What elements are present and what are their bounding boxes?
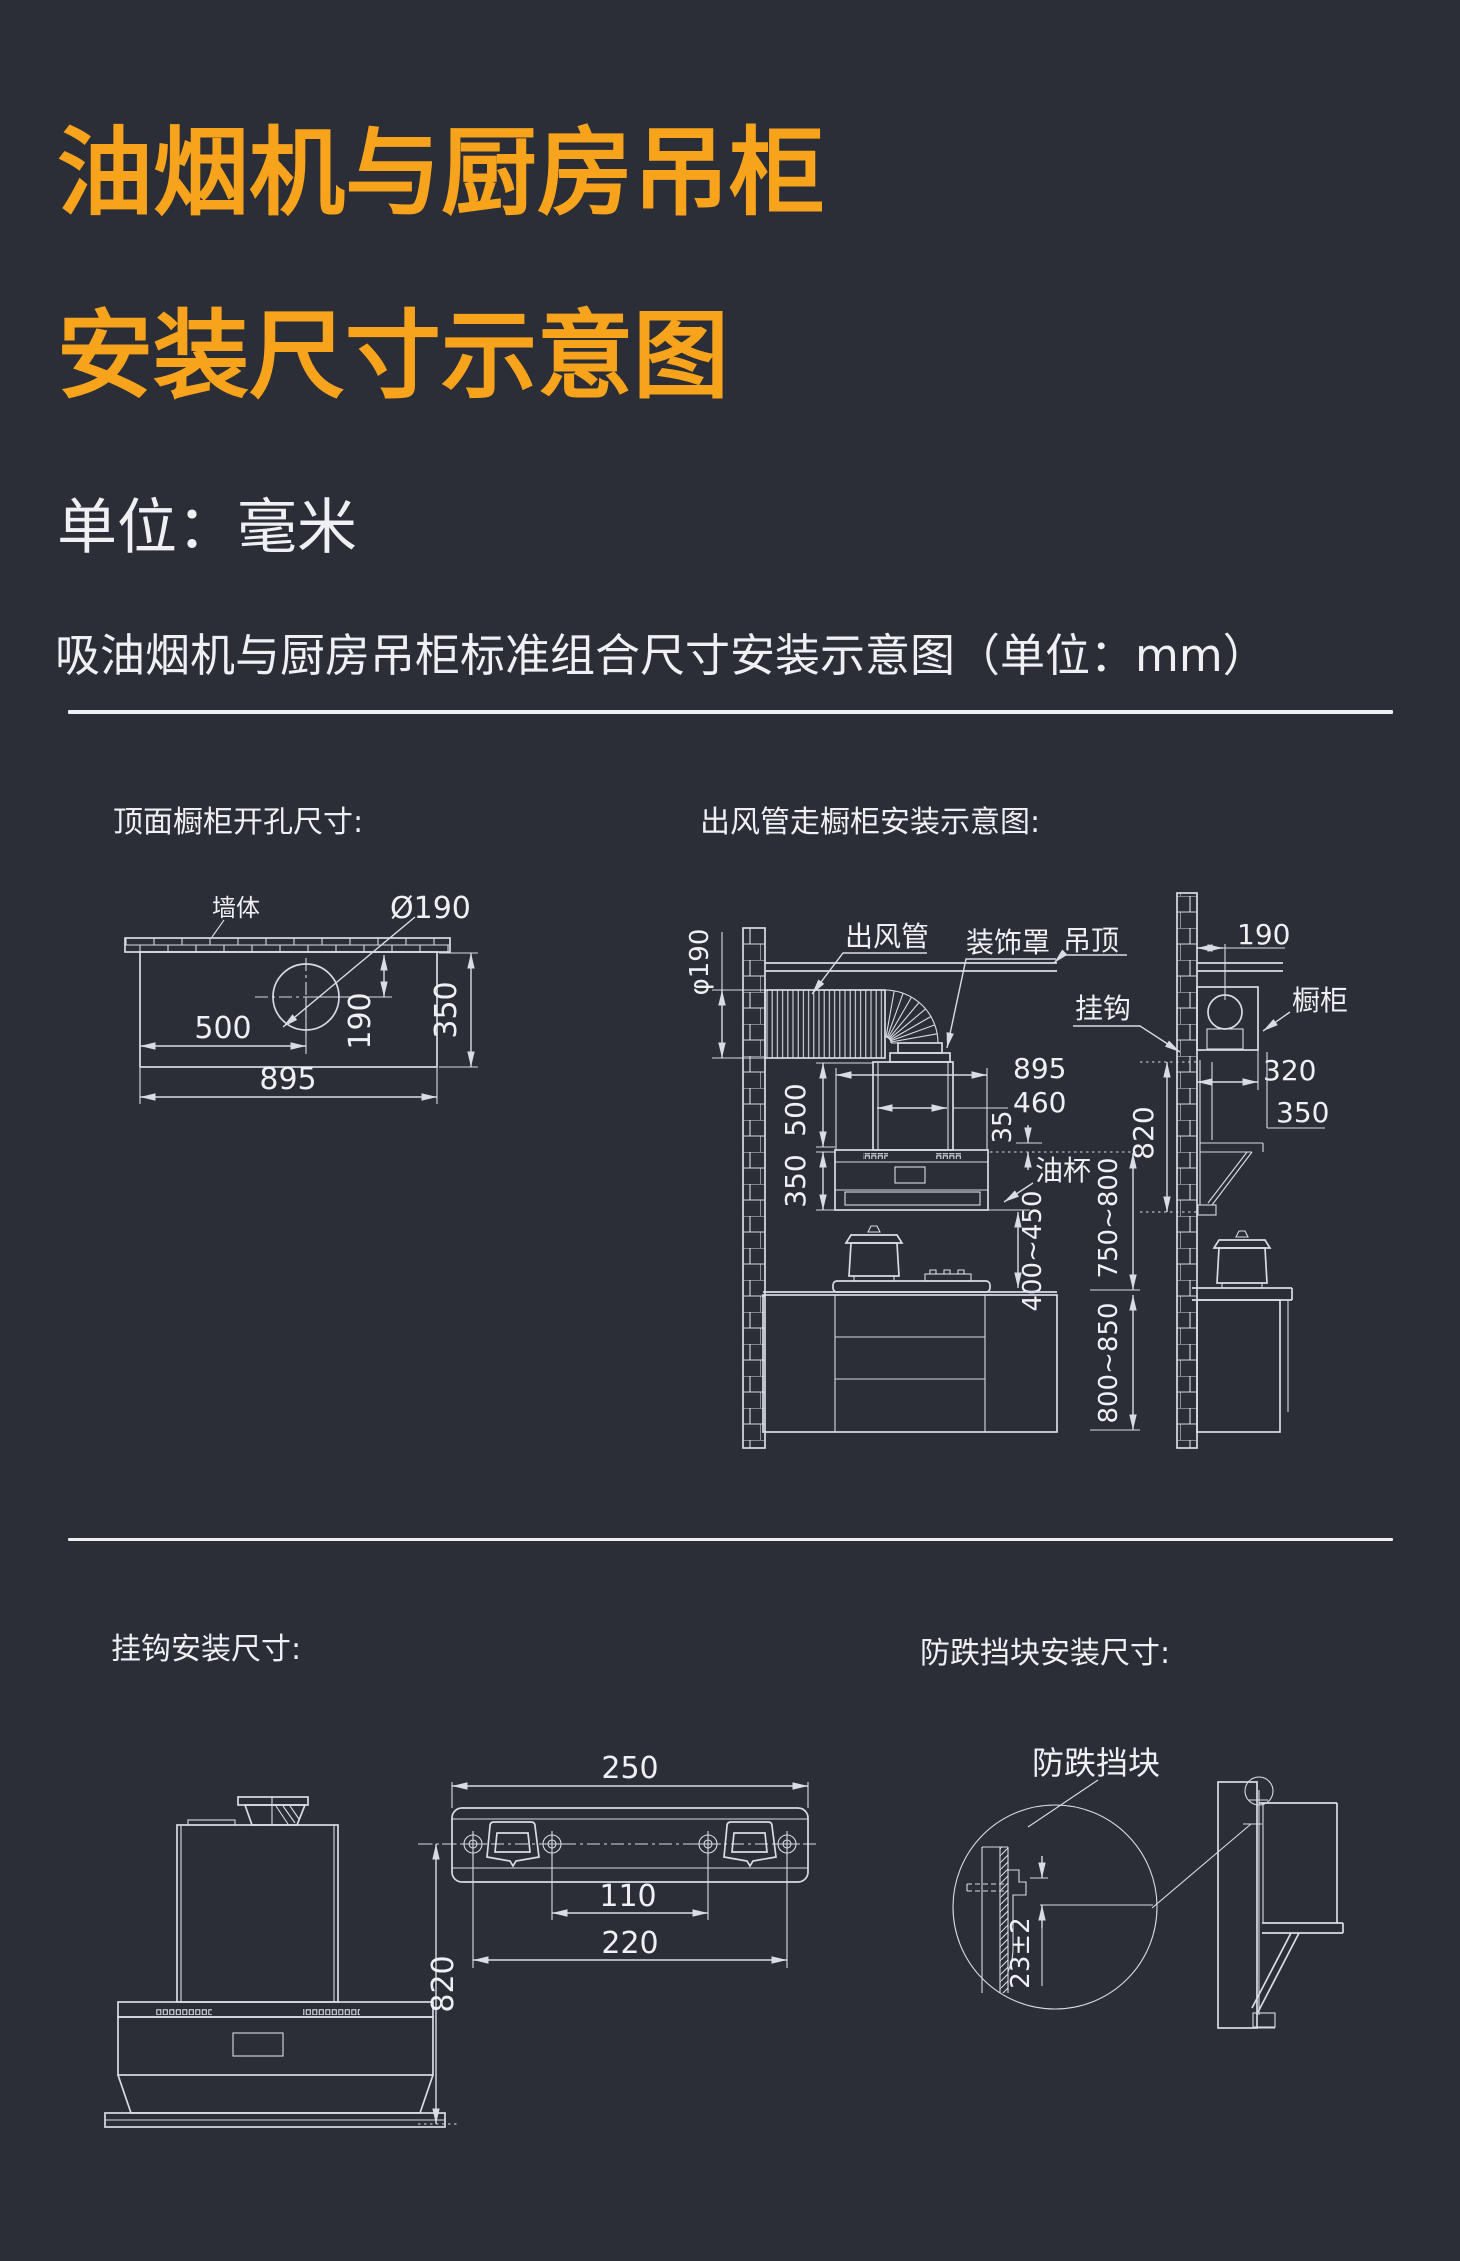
dim-820-label: 820 xyxy=(1127,1106,1160,1159)
section-divider xyxy=(68,1538,1393,1541)
dim-800-850-label: 800~850 xyxy=(1094,1302,1124,1423)
detail-view xyxy=(953,1805,1157,2009)
wall-label: 墙体 xyxy=(212,894,260,922)
dim-220-label: 220 xyxy=(601,1926,658,1961)
dim-750-800-label: 750~800 xyxy=(1094,1157,1124,1278)
left-wall xyxy=(743,928,765,1448)
dim-cabinet-depth: 320 xyxy=(1197,1050,1316,1090)
top-hole-diagram: 墙体 Ø190 500 895 190 350 xyxy=(80,880,520,1130)
dim-23-label: 23±2 xyxy=(1006,1917,1036,1988)
dim-counter-height: 800~850 xyxy=(1090,1295,1140,1430)
duct-label: 出风管 xyxy=(845,920,929,953)
block-diagram-title: 防跌挡块安装尺寸: xyxy=(920,1639,1170,1669)
block-label: 防跌挡块 xyxy=(1032,1744,1160,1782)
hook-plate xyxy=(419,1808,816,1882)
hood-side-profile xyxy=(1198,1060,1263,1215)
side-wall xyxy=(1177,893,1197,1448)
base-cabinet-front xyxy=(763,1292,1057,1432)
duct-callout: 出风管 xyxy=(812,920,929,994)
decor-cover-label: 装饰罩 xyxy=(966,926,1050,959)
dim-190-label: 190 xyxy=(1237,918,1290,951)
unit-note: 单位：毫米 xyxy=(57,498,357,558)
cabinet-callout: 橱柜 xyxy=(1263,984,1348,1031)
duct-diagram-title: 出风管走橱柜安装示意图: xyxy=(700,808,1040,838)
dim-350-label: 350 xyxy=(779,1154,812,1207)
dim-820-label: 820 xyxy=(426,1955,461,2012)
heading-underline xyxy=(68,710,1393,714)
dim-plate-width: 250 xyxy=(452,1751,808,1808)
dim-35-label: 35 xyxy=(988,1110,1018,1143)
hook-diagram-title: 挂钩安装尺寸: xyxy=(111,1635,301,1665)
dim-drop: 23±2 xyxy=(1006,1856,1153,1989)
dim-chimney-width: 460 xyxy=(877,1086,1066,1119)
base-cabinet-side xyxy=(1197,1300,1288,1432)
cabinet-label: 橱柜 xyxy=(1292,984,1348,1017)
dim-350-label: 350 xyxy=(429,981,464,1038)
hood-front xyxy=(835,1062,988,1210)
hole-dia-label: Ø190 xyxy=(390,891,471,926)
ceiling-lines xyxy=(765,963,1283,971)
page-title-line1: 油烟机与厨房吊柜 xyxy=(57,125,825,221)
ceiling-label: 吊顶 xyxy=(1063,924,1119,957)
block-diagram: 防跌挡块 23±2 xyxy=(895,1735,1420,2060)
dim-110-label: 110 xyxy=(599,1879,656,1914)
dim-320-label: 320 xyxy=(1263,1054,1316,1087)
exhaust-duct xyxy=(765,990,885,1058)
section-heading: 吸油烟机与厨房吊柜标准组合尺寸安装示意图（单位：mm） xyxy=(55,633,1268,678)
hood-wall-side-view xyxy=(1152,1777,1343,2028)
dim-hood-bottom-to-counter: 750~800 xyxy=(1090,1153,1140,1290)
duct-elbow xyxy=(885,990,938,1043)
duct-diagram: 吊顶 φ190 出风管 装饰罩 油杯 xyxy=(655,885,1460,1460)
stove-side xyxy=(1192,1231,1292,1300)
hook-label: 挂钩 xyxy=(1075,992,1131,1025)
dim-inner-span: 110 xyxy=(552,1853,708,1920)
dim-895: 895 xyxy=(140,1062,437,1104)
dim-250-label: 250 xyxy=(601,1751,658,1786)
ceiling-callout: 吊顶 xyxy=(1054,924,1127,963)
block-callout: 防跌挡块 xyxy=(1028,1744,1160,1827)
dim-hood-height: 350 xyxy=(779,1152,835,1210)
top-hole-diagram-title: 顶面橱柜开孔尺寸: xyxy=(113,808,363,838)
duct-dia-label: φ190 xyxy=(685,929,715,996)
dim-350-side-label: 350 xyxy=(1276,1096,1329,1129)
oil-cup-label: 油杯 xyxy=(1035,1154,1091,1187)
dim-400-450-label: 400~450 xyxy=(1018,1190,1048,1311)
dim-190-label: 190 xyxy=(343,992,378,1049)
stove-front xyxy=(833,1226,990,1292)
dim-460-label: 460 xyxy=(1013,1086,1066,1119)
dim-overlap: 35 xyxy=(988,1110,1042,1170)
hook-diagram: 820 250 110 220 xyxy=(60,1740,850,2180)
page-title-line2: 安装尺寸示意图 xyxy=(57,308,729,404)
cabinet-top-panel xyxy=(140,952,437,1067)
cabinet-side xyxy=(1197,987,1258,1050)
hood-front-view xyxy=(105,1797,445,2127)
dim-hook-to-bottom: 820 xyxy=(418,1844,461,2124)
dim-895-label: 895 xyxy=(259,1062,316,1097)
dim-500-label: 500 xyxy=(194,1011,251,1046)
dim-895-label: 895 xyxy=(1013,1052,1066,1085)
dim-500: 500 xyxy=(140,997,306,1054)
dim-hood-to-counter: 400~450 xyxy=(988,1190,1048,1311)
dim-500-label: 500 xyxy=(779,1083,812,1136)
hook-callout: 挂钩 xyxy=(1073,992,1180,1052)
